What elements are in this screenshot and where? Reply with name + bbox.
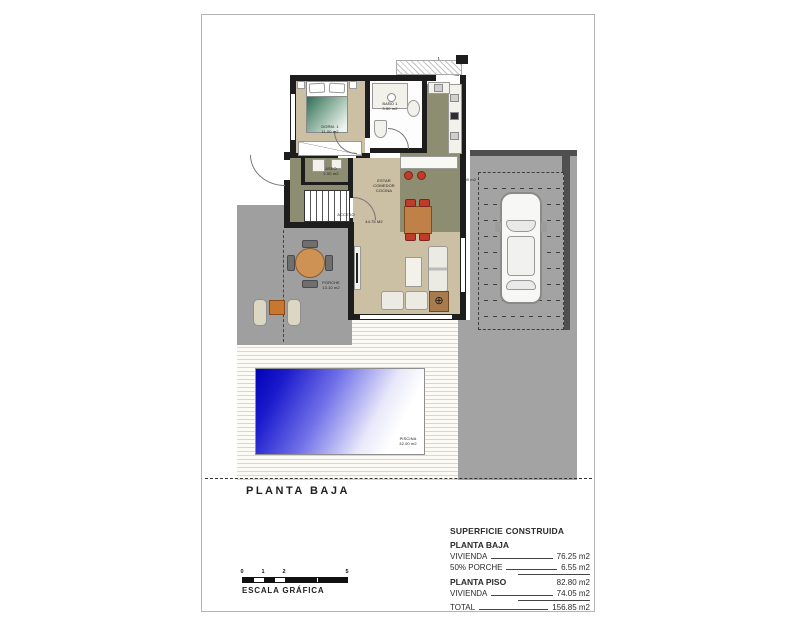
tv-screen bbox=[356, 253, 358, 283]
car-mirror-right bbox=[541, 222, 547, 232]
sink-icon bbox=[434, 84, 443, 92]
driveway-lower bbox=[458, 320, 577, 480]
area-legend: SUPERFICIE CONSTRUIDA PLANTA BAJA VIVIEN… bbox=[450, 526, 590, 612]
aseo-label: ASEO2.00 m2 bbox=[314, 166, 348, 176]
scale-tick: 0 bbox=[240, 569, 243, 575]
bathroom-sink bbox=[407, 100, 420, 117]
legend-rule bbox=[518, 600, 590, 601]
bedroom-label: DORM. 111.00 m2 bbox=[310, 124, 350, 134]
floorplan-canvas: 5.00 m2 PISCINA 32.00 m2 bbox=[0, 0, 800, 640]
nightstand bbox=[349, 81, 357, 89]
dining-chair bbox=[405, 233, 416, 241]
boundary-wall-top bbox=[470, 150, 577, 156]
dining-chair bbox=[405, 199, 416, 207]
porch-chair bbox=[287, 255, 295, 271]
car-windshield bbox=[506, 220, 536, 232]
kitchen-counter bbox=[448, 84, 462, 154]
wall-stub bbox=[456, 55, 468, 64]
scale-tick: 5 bbox=[345, 569, 348, 575]
pillow bbox=[309, 83, 326, 94]
car-top-view bbox=[500, 192, 542, 304]
sofa-chaise bbox=[428, 246, 448, 292]
legend-row-subtotal: PLANTA PISO 82.80 m2 bbox=[450, 577, 590, 587]
tv-unit bbox=[354, 246, 361, 290]
living-area-label: 44.75 M2 bbox=[356, 219, 392, 224]
legend-row-total: TOTAL 156.85 m2 bbox=[450, 603, 590, 612]
porch-chair bbox=[302, 240, 318, 248]
planter bbox=[287, 299, 301, 326]
kitchen-island bbox=[400, 156, 458, 169]
porch-chair bbox=[325, 255, 333, 271]
nightstand bbox=[297, 81, 305, 89]
corner-table: ⊕ bbox=[429, 291, 449, 312]
staircase bbox=[304, 190, 350, 222]
rear-porch-hatch bbox=[396, 60, 462, 75]
legend-row: VIVIENDA 74.05 m2 bbox=[450, 589, 590, 598]
car-rear-window bbox=[506, 280, 536, 290]
appliance-icon bbox=[450, 132, 459, 140]
legend-title: SUPERFICIE CONSTRUIDA bbox=[450, 526, 590, 536]
wall-hall-bottom bbox=[284, 222, 354, 228]
scale-tick: 2 bbox=[282, 569, 285, 575]
wall-bed-bath bbox=[365, 81, 370, 138]
porch-side-table bbox=[269, 300, 285, 315]
planter bbox=[253, 299, 267, 326]
living-room-label: ESTARCOMEDORCOCINA bbox=[364, 178, 404, 193]
wall-bath-kitchen bbox=[422, 81, 427, 153]
porch-label: PORCHE13.10 m2 bbox=[312, 280, 350, 290]
pillow bbox=[329, 83, 346, 94]
sofa-seat bbox=[405, 291, 428, 310]
dining-chair bbox=[419, 199, 430, 207]
stove-icon bbox=[450, 112, 459, 120]
living-sliding-window bbox=[360, 315, 452, 319]
bathroom-label: BAÑO 13.50 m2 bbox=[372, 101, 408, 111]
car-mirror-left bbox=[495, 222, 501, 232]
pool-label: PISCINA 32.00 m2 bbox=[392, 436, 424, 446]
car-roof bbox=[507, 236, 535, 276]
legend-row: 50% PORCHE 6.55 m2 bbox=[450, 563, 590, 572]
legend-row: VIVIENDA 76.25 m2 bbox=[450, 552, 590, 561]
crosshair-icon: ⊕ bbox=[434, 295, 443, 307]
access-label: ACCESO bbox=[330, 212, 362, 217]
bar-stool bbox=[404, 171, 413, 180]
page-title: PLANTA BAJA bbox=[246, 485, 350, 497]
property-boundary-line bbox=[205, 478, 592, 479]
sofa-seat bbox=[381, 291, 404, 310]
living-side-window bbox=[461, 238, 465, 292]
kitchen-counter-top bbox=[428, 82, 450, 94]
legend-rule bbox=[518, 574, 590, 575]
scale-bar-segments bbox=[242, 577, 348, 583]
dining-chair bbox=[419, 233, 430, 241]
scale-bar-label: ESCALA GRÁFICA bbox=[242, 586, 324, 595]
dining-table bbox=[404, 206, 432, 234]
legend-section-planta-baja: PLANTA BAJA bbox=[450, 540, 590, 550]
coffee-table bbox=[405, 257, 422, 287]
bedroom-window bbox=[291, 94, 295, 140]
porch-boundary-line bbox=[283, 230, 285, 342]
porch-round-table bbox=[295, 248, 325, 278]
wall-aseo-bottom bbox=[301, 182, 349, 185]
wall-aseo-left bbox=[301, 156, 305, 184]
bar-stool bbox=[417, 171, 426, 180]
toilet bbox=[374, 120, 387, 138]
appliance-icon bbox=[450, 94, 459, 102]
scale-tick: 1 bbox=[261, 569, 264, 575]
